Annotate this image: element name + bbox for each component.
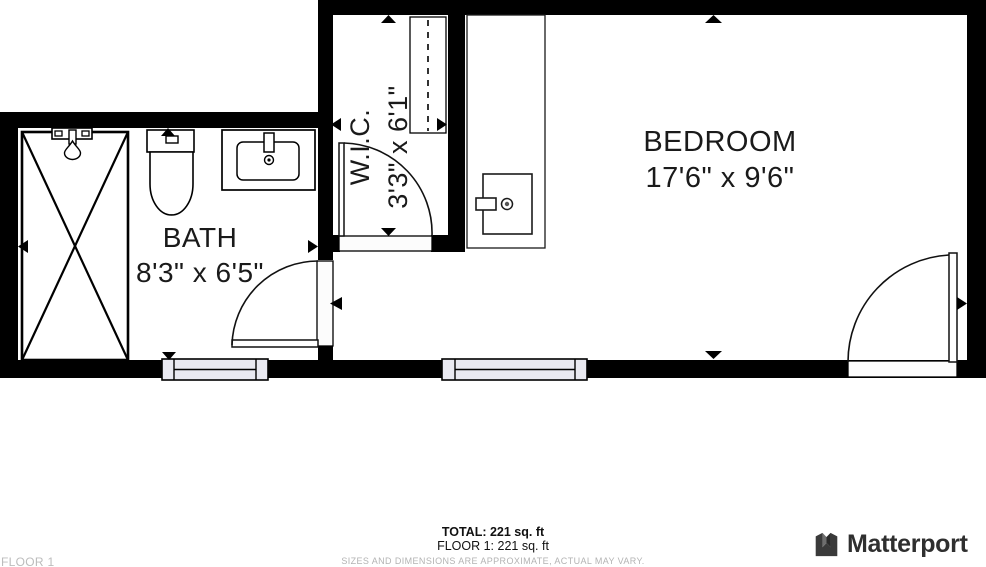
wall-wic-bottom-right: [431, 235, 465, 252]
floor-name-label: FLOOR 1: [1, 555, 54, 567]
door-openings: [317, 236, 957, 377]
arrow-up-bedroom: [705, 15, 722, 23]
window-bedroom: [442, 359, 587, 380]
window-bath: [162, 359, 268, 380]
wall-left: [0, 112, 18, 378]
bedroom-dims: 17'6" x 9'6": [560, 160, 880, 196]
floorplan-page: BEDROOM 17'6" x 9'6" BATH 8'3" x 6'5" W.…: [0, 0, 986, 567]
wic-label: W.I.C. 3'3" x 6'1": [341, 47, 421, 247]
bath-dims: 8'3" x 6'5": [80, 255, 320, 290]
arrow-right-bedroom: [957, 297, 967, 310]
wall-right: [967, 0, 986, 378]
wall-bath-top: [0, 112, 333, 128]
toilet-icon: [147, 130, 194, 215]
wall-top: [318, 0, 986, 15]
bath-name: BATH: [80, 220, 320, 255]
matterport-icon: [813, 531, 840, 558]
wall-mid-upper: [318, 15, 333, 260]
matterport-logo: Matterport: [813, 530, 968, 559]
bedroom-label: BEDROOM 17'6" x 9'6": [560, 124, 880, 196]
entry-door-opening: [848, 361, 957, 377]
bath-label: BATH 8'3" x 6'5": [80, 220, 320, 290]
wall-wic-right: [448, 15, 465, 252]
wall-mid-lower: [318, 345, 333, 362]
bedroom-name: BEDROOM: [560, 124, 880, 160]
wall-wic-bottom-left: [318, 235, 340, 252]
matterport-wordmark: Matterport: [847, 530, 968, 559]
wic-dims: 3'3" x 6'1": [379, 47, 417, 247]
sink-vanity-icon: [222, 130, 315, 190]
arrow-up-wic: [381, 15, 396, 23]
arrow-down-bedroom: [705, 351, 722, 359]
entry-door: [848, 253, 957, 362]
water-heater-icon: [476, 174, 532, 234]
wic-name: W.I.C.: [341, 47, 379, 247]
